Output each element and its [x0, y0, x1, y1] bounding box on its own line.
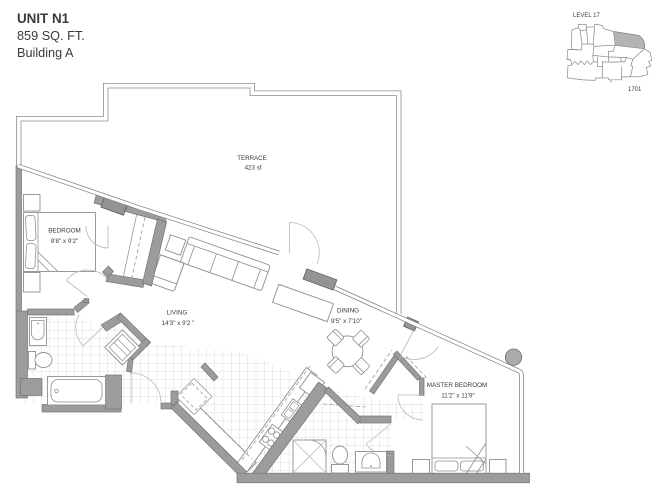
svg-text:Building A: Building A [17, 46, 74, 60]
svg-text:423 sf: 423 sf [245, 165, 262, 172]
svg-text:DINING: DINING [337, 308, 359, 315]
svg-text:UNIT N1: UNIT N1 [17, 11, 70, 26]
svg-text:LIVING: LIVING [167, 310, 188, 317]
svg-text:1701: 1701 [628, 87, 642, 93]
svg-text:859 SQ. FT.: 859 SQ. FT. [17, 29, 85, 43]
svg-text:9'5" x 7'10": 9'5" x 7'10" [331, 318, 362, 325]
svg-text:14'3" x 9'2 ": 14'3" x 9'2 " [162, 320, 195, 327]
svg-text:11'2" x 11'9": 11'2" x 11'9" [441, 393, 475, 400]
svg-text:LEVEL 17: LEVEL 17 [573, 13, 600, 19]
svg-text:TERRACE: TERRACE [237, 155, 267, 162]
svg-text:BEDROOM: BEDROOM [48, 228, 81, 235]
svg-text:9'8" x 9'2": 9'8" x 9'2" [51, 238, 79, 245]
svg-text:MASTER BEDROOM: MASTER BEDROOM [427, 382, 488, 389]
